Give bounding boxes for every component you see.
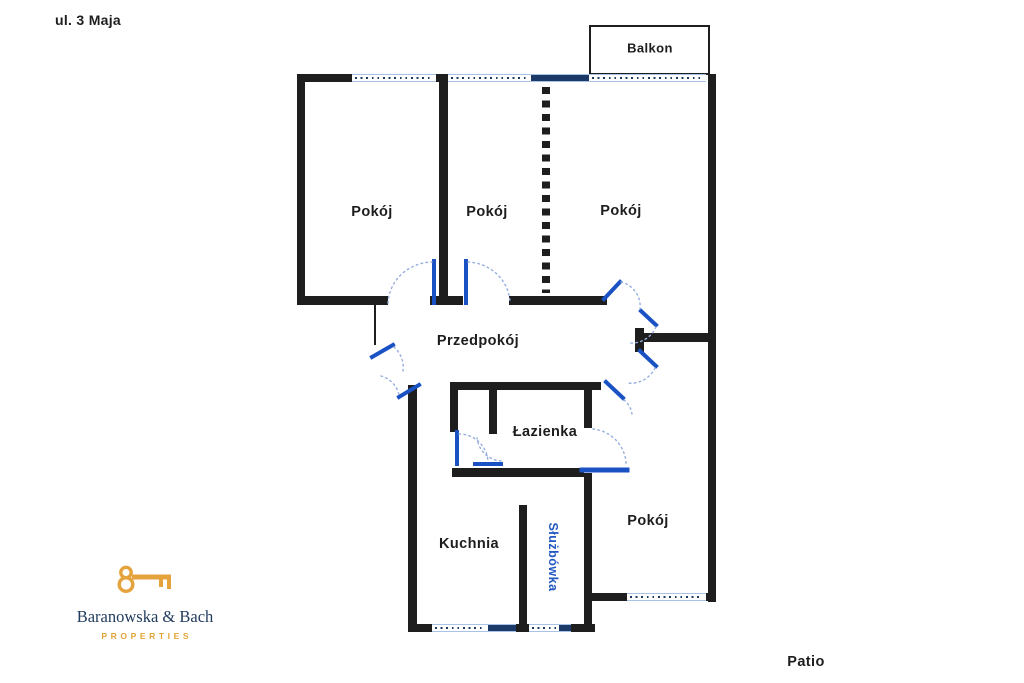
wall: [584, 593, 627, 601]
wall: [635, 328, 644, 352]
logo-name: Baranowska & Bach: [70, 607, 220, 627]
window: [589, 74, 706, 82]
door-swing-arc: [624, 400, 632, 414]
wall: [706, 593, 716, 601]
door-leaf: [606, 382, 623, 398]
logo-tagline: PROPERTIES: [70, 631, 220, 641]
room-label-przedpokoj: Przedpokój: [437, 333, 519, 349]
key-icon: [112, 562, 178, 598]
wall: [450, 382, 458, 432]
door-leaf: [641, 311, 656, 325]
patio-label: Patio: [787, 654, 824, 670]
window-solid: [559, 624, 571, 632]
wall: [489, 390, 497, 434]
floor-plan-canvas: ul. 3 Maja Balkon: [0, 0, 1024, 683]
door-swing-arc: [477, 438, 501, 461]
wall: [297, 296, 388, 305]
window: [627, 593, 706, 601]
wall: [450, 382, 601, 390]
door-swing-arc: [381, 376, 399, 395]
dashed-wall: [542, 87, 550, 293]
wall: [408, 624, 432, 632]
balcony-door: [531, 74, 589, 82]
street-label: ul. 3 Maja: [55, 12, 121, 28]
agency-logo: Baranowska & Bach PROPERTIES: [70, 562, 220, 641]
wall: [452, 468, 584, 477]
door-swing-arc: [459, 434, 488, 462]
room-label-sluzbowka: Służbówka: [546, 522, 560, 591]
wall: [430, 296, 463, 305]
room-label-pokoj-2: Pokój: [466, 204, 507, 220]
wall: [584, 390, 592, 428]
room-label-lazienka: Łazienka: [513, 424, 577, 440]
door-swing-arc: [593, 429, 626, 465]
window: [352, 74, 436, 82]
window: [432, 624, 488, 632]
wall: [637, 333, 710, 342]
room-label-kuchnia: Kuchnia: [439, 536, 499, 552]
room-label-balcony: Balkon: [627, 41, 673, 56]
room-label-pokoj-4: Pokój: [627, 513, 668, 529]
wall: [297, 74, 352, 82]
door-leaf: [372, 345, 393, 357]
door-swing-arc: [388, 262, 432, 303]
window-solid: [488, 624, 516, 632]
door-swing-arc: [621, 282, 640, 309]
wall: [584, 473, 592, 632]
wall: [519, 505, 527, 632]
door-swing-arc: [627, 368, 655, 383]
wall: [297, 74, 305, 305]
wall: [374, 305, 376, 345]
wall: [408, 385, 417, 632]
window: [529, 624, 559, 632]
window: [448, 74, 531, 82]
door-swing-arc: [394, 347, 403, 371]
door-leaf: [640, 351, 656, 366]
room-label-pokoj-3: Pokój: [600, 203, 641, 219]
wall: [509, 296, 607, 305]
room-label-pokoj-1: Pokój: [351, 204, 392, 220]
door-swing-arc: [468, 262, 510, 303]
wall: [439, 74, 448, 299]
